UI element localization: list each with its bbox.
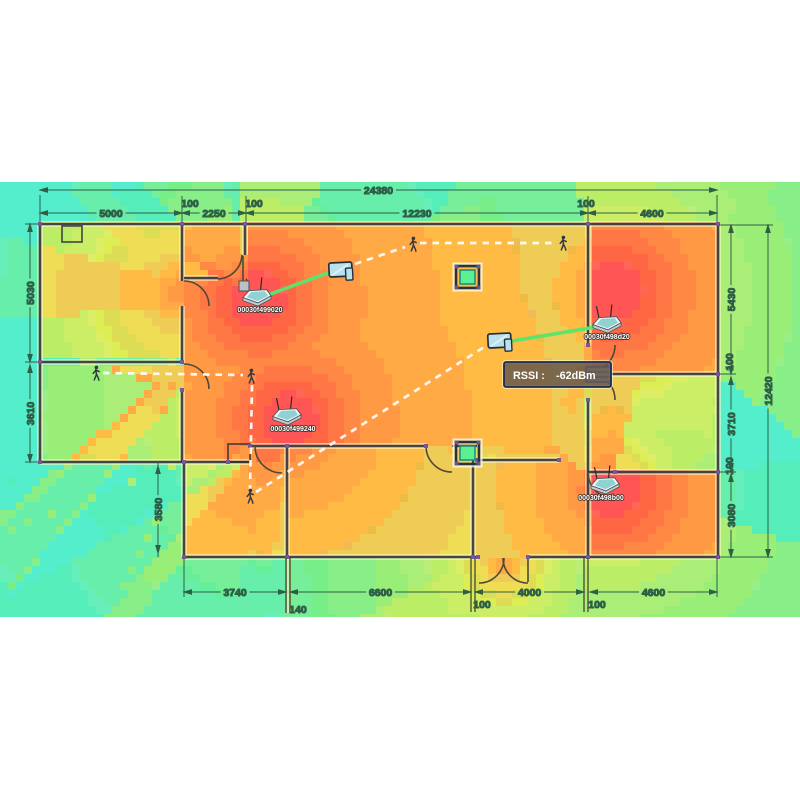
svg-text:3740: 3740: [223, 587, 247, 599]
svg-text:3610: 3610: [25, 402, 37, 426]
svg-text:00030f498d20: 00030f498d20: [584, 334, 630, 341]
svg-text:100: 100: [588, 599, 606, 611]
svg-text:100: 100: [473, 599, 491, 611]
svg-text:00030f498b00: 00030f498b00: [578, 495, 624, 502]
svg-text:-62dBm: -62dBm: [556, 370, 596, 382]
svg-text:2250: 2250: [202, 208, 226, 220]
svg-text:4000: 4000: [518, 587, 542, 599]
svg-text:24380: 24380: [364, 185, 393, 197]
svg-text:3580: 3580: [153, 498, 165, 522]
svg-text:100: 100: [577, 198, 595, 210]
svg-text:100: 100: [245, 198, 263, 210]
svg-text:100: 100: [724, 353, 736, 371]
svg-text:5430: 5430: [726, 288, 738, 312]
svg-text:4600: 4600: [640, 208, 664, 220]
svg-text:12230: 12230: [402, 208, 431, 220]
svg-text:5000: 5000: [99, 208, 123, 220]
svg-text:3710: 3710: [726, 412, 738, 436]
svg-text:5030: 5030: [25, 281, 37, 305]
svg-text:100: 100: [181, 198, 199, 210]
svg-text:4600: 4600: [642, 587, 666, 599]
svg-text:12420: 12420: [763, 376, 775, 405]
svg-text:140: 140: [289, 604, 307, 616]
svg-text:RSSI :: RSSI :: [513, 370, 545, 382]
svg-text:00030f499020: 00030f499020: [237, 307, 282, 314]
svg-text:6600: 6600: [369, 587, 393, 599]
svg-text:00030f499240: 00030f499240: [270, 426, 315, 433]
svg-text:3080: 3080: [726, 504, 738, 528]
